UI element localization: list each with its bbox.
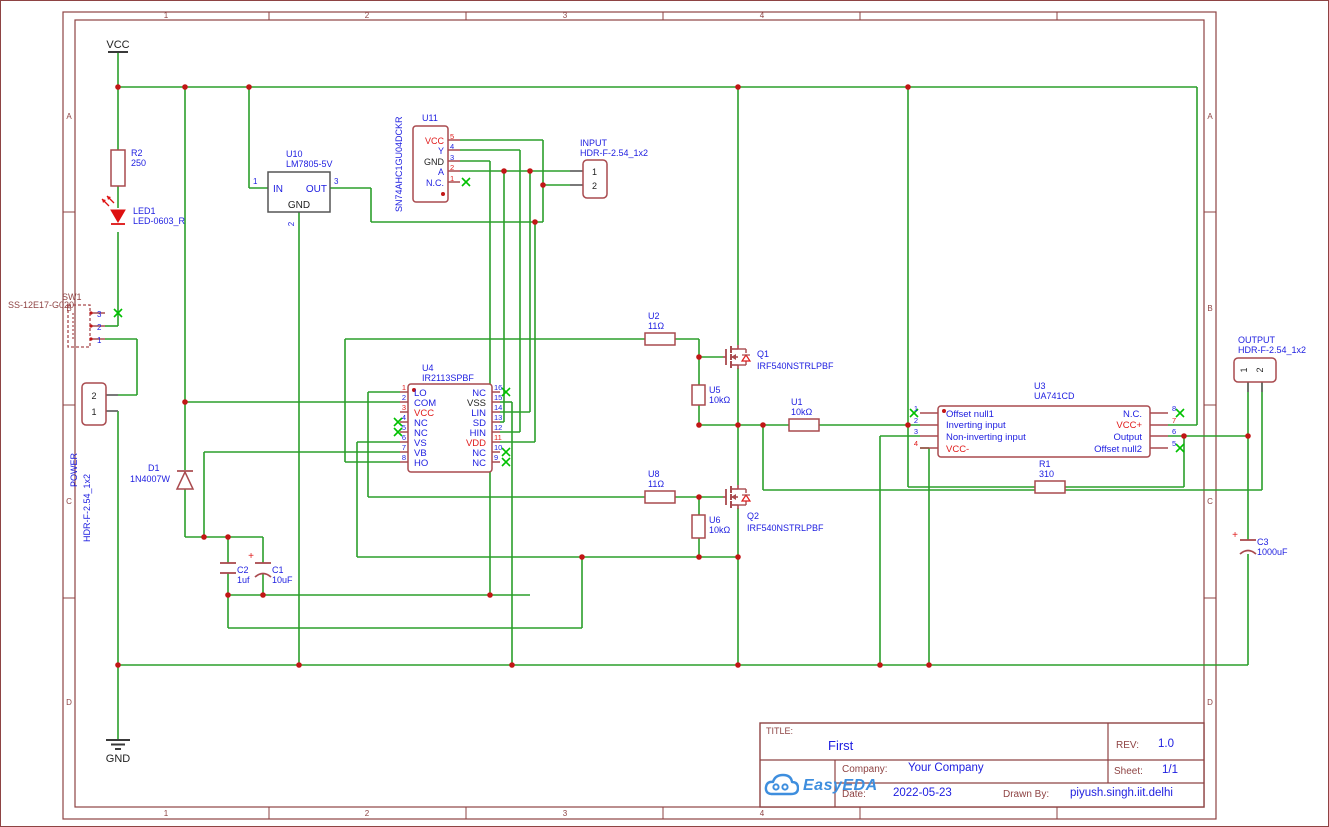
header-INPUT-body[interactable] (583, 160, 607, 198)
switch-pin-dot (89, 324, 92, 327)
label-D1-value: 1N4007W (130, 474, 171, 484)
pinnum-U4-11: 11 (494, 433, 502, 442)
label-U5-value: 10kΩ (709, 395, 731, 405)
resistor-U1-body[interactable] (789, 419, 819, 431)
label-R1-ref: R1 (1039, 459, 1051, 469)
frame-col-label: 4 (760, 11, 765, 20)
junction-dot (1245, 433, 1251, 439)
pin-U3-nc: N.C. (1123, 409, 1142, 420)
titleblock-company-value[interactable]: Your Company (908, 762, 984, 774)
frame-col-label: 2 (365, 809, 370, 818)
pinnum-U4-8: 8 (402, 453, 406, 462)
label-D1-ref: D1 (148, 463, 160, 473)
pin-U3-offset-null1: Offset null1 (946, 409, 994, 420)
label-U6-value: 10kΩ (709, 525, 731, 535)
resistor-U8-body[interactable] (645, 491, 675, 503)
titleblock-rev-label: REV: (1116, 740, 1139, 751)
label-R2-ref: R2 (131, 148, 143, 158)
pin-OUTPUT-1: 1 (1239, 367, 1249, 372)
junction-dot (696, 554, 702, 560)
pinnum-U3-7: 7 (1172, 416, 1176, 425)
pin-U11-Y: Y (438, 146, 444, 156)
diode-D1-anode[interactable] (177, 472, 193, 489)
pin-U10-OUT: OUT (306, 184, 327, 195)
junction-dot (115, 84, 121, 90)
pinnum-U3-5: 5 (1172, 439, 1176, 448)
switch-pin-dot (89, 311, 92, 314)
label-U3-value: UA741CD (1034, 391, 1075, 401)
capacitor-C1-plus: + (248, 551, 254, 562)
pin-U3-vcc-minus: VCC- (946, 444, 969, 455)
net-flag-vcc-label: VCC (106, 39, 129, 51)
pinnum-U11-1: 1 (450, 174, 454, 183)
pin-U3-inverting-input: Inverting input (946, 420, 1006, 431)
pin-U4-HO: HO (414, 458, 428, 469)
label-OUTPUT-ref: OUTPUT (1238, 335, 1276, 345)
label-R1-value: 310 (1039, 469, 1054, 479)
pinnum-U4-15: 15 (494, 393, 502, 402)
label-U4-ref: U4 (422, 363, 434, 373)
junction-dot (201, 534, 207, 540)
frame-row-label: B (1207, 304, 1212, 313)
label-U11-ref: U11 (422, 113, 438, 123)
pin-U4-NC9: NC (472, 458, 486, 469)
titleblock-drawnby-value[interactable]: piyush.singh.iit.delhi (1070, 787, 1173, 799)
label-C2-value: 1uf (237, 575, 250, 585)
junction-dot (905, 422, 911, 428)
junction-dot (532, 219, 538, 225)
label-U8-ref: U8 (648, 469, 660, 479)
mosfet-Q1-bodydiode-arrow (742, 355, 750, 361)
frame-col-label: 3 (563, 11, 568, 20)
junction-dot (509, 662, 515, 668)
pinnum-U11-2: 2 (450, 163, 454, 172)
resistor-R1-body[interactable] (1035, 481, 1065, 493)
junction-dot (260, 592, 266, 598)
label-C3-value: 1000uF (1257, 547, 1288, 557)
pin-OUTPUT-2: 2 (1255, 367, 1265, 372)
net-flag-gnd-label: GND (106, 753, 131, 765)
label-U3-ref: U3 (1034, 381, 1046, 391)
pinnum-U4-6: 6 (402, 433, 406, 442)
pinnum-U4-5: 5 (402, 423, 406, 432)
pinnum-U11-5: 5 (450, 132, 454, 141)
label-U10-value: LM7805-5V (286, 159, 333, 169)
junction-dot (540, 182, 546, 188)
pinnum-U4-10: 10 (494, 443, 502, 452)
pinnum-U4-2: 2 (402, 393, 406, 402)
titleblock-drawnby-label: Drawn By: (1003, 789, 1049, 800)
pinnum-U3-4: 4 (914, 439, 918, 448)
pinnum-U4-9: 9 (494, 453, 498, 462)
frame-row-label: C (66, 497, 72, 506)
label-U2-ref: U2 (648, 311, 660, 321)
frame-row-label: A (1207, 112, 1213, 121)
label-POWER-value: HDR-F-2.54_1x2 (82, 474, 92, 542)
label-INPUT-ref: INPUT (580, 138, 608, 148)
schematic-canvas[interactable]: 11223344AABBCCDD++VCCGNDR2250LED1LED-060… (0, 0, 1329, 827)
pinnum-U3-6: 6 (1172, 427, 1176, 436)
pinnum-U3-1: 1 (914, 404, 918, 413)
pinnum-U10-2: 2 (287, 221, 296, 226)
header-POWER-body[interactable] (82, 383, 106, 425)
pin-U3-non-inverting-input: Non-inverting input (946, 432, 1026, 443)
pinnum-U3-3: 3 (914, 427, 918, 436)
junction-dot (877, 662, 883, 668)
label-U4-value: IR2113SPBF (422, 373, 474, 383)
pin-SW1-1: 1 (97, 336, 102, 345)
junction-dot (115, 662, 121, 668)
capacitor-C3-plate[interactable] (1240, 551, 1256, 555)
pin-U10-IN: IN (273, 184, 283, 195)
titleblock-sheet-value[interactable]: 1/1 (1162, 764, 1178, 776)
capacitor-C3-plus: + (1232, 530, 1238, 541)
pin-POWER-2: 2 (91, 391, 96, 401)
junction-dot (696, 354, 702, 360)
label-U1-ref: U1 (791, 397, 803, 407)
pinnum-U4-14: 14 (494, 403, 502, 412)
easyeda-logo-text: EasyEDA (803, 777, 878, 795)
pin-U11-VCC: VCC (425, 136, 445, 146)
junction-dot (579, 554, 585, 560)
label-LED1-ref: LED1 (133, 206, 156, 216)
label-C1-value: 10uF (272, 575, 293, 585)
junction-dot (246, 84, 252, 90)
label-OUTPUT-value: HDR-F-2.54_1x2 (1238, 345, 1306, 355)
label-C3-ref: C3 (1257, 537, 1269, 547)
pin-INPUT-2: 2 (592, 181, 597, 191)
label-U8-value: 11Ω (648, 479, 664, 489)
pin-U3-output: Output (1113, 432, 1142, 443)
pin-SW1-2: 2 (97, 323, 102, 332)
label-U10-ref: U10 (286, 149, 303, 159)
pinnum-U4-3: 3 (402, 403, 406, 412)
titleblock-title-value[interactable]: First (828, 738, 853, 753)
junction-dot (225, 534, 231, 540)
junction-dot (905, 84, 911, 90)
pin-U11-A: A (438, 167, 444, 177)
label-Q1-value: IRF540NSTRLPBF (757, 361, 834, 371)
pinnum-U4-1: 1 (402, 383, 406, 392)
junction-dot (760, 422, 766, 428)
mosfet-Q2-bodydiode-arrow (742, 495, 750, 501)
label-LED1-value: LED-0603_R (133, 216, 186, 226)
pinnum-U10-1: 1 (253, 177, 258, 186)
easyeda-logo: EasyEDA (763, 772, 878, 800)
junction-dot (182, 84, 188, 90)
pin-INPUT-1: 1 (592, 167, 597, 177)
label-U2-value: 11Ω (648, 321, 664, 331)
resistor-U2-body[interactable] (645, 333, 675, 345)
pin-U3-vcc-plus: VCC+ (1116, 420, 1142, 431)
titleblock-date-value[interactable]: 2022-05-23 (893, 787, 952, 799)
label-C2-ref: C2 (237, 565, 249, 575)
pinnum-U11-3: 3 (450, 153, 454, 162)
pin-U10-GND: GND (288, 200, 310, 211)
frame-row-label: A (66, 112, 72, 121)
pinnum-U10-3: 3 (334, 177, 339, 186)
label-U6-ref: U6 (709, 515, 721, 525)
pinnum-U4-4: 4 (402, 413, 406, 422)
label-SW1-value: SS-12E17-G020 (8, 300, 74, 310)
frame-col-label: 1 (164, 809, 169, 818)
junction-dot (735, 422, 741, 428)
pinnum-U3-2: 2 (914, 416, 918, 425)
label-C1-ref: C1 (272, 565, 284, 575)
pinnum-U4-7: 7 (402, 443, 406, 452)
label-U11-value: SN74AHC1GU04DCKR (394, 116, 404, 212)
resistor-U5-body[interactable] (692, 385, 705, 405)
pin1-dot (441, 192, 445, 196)
pin-U11-NC: N.C. (426, 178, 444, 188)
label-POWER-ref: POWER (69, 453, 79, 488)
label-U1-value: 10kΩ (791, 407, 813, 417)
led-LED1-body[interactable] (111, 210, 125, 222)
junction-dot (296, 662, 302, 668)
label-U5-ref: U5 (709, 385, 721, 395)
pin-SW1-3: 3 (97, 310, 102, 319)
junction-dot (696, 422, 702, 428)
frame-col-label: 2 (365, 11, 370, 20)
junction-dot (501, 168, 507, 174)
pinnum-U4-16: 16 (494, 383, 502, 392)
pin-POWER-1: 1 (91, 407, 96, 417)
label-Q2-ref: Q2 (747, 511, 759, 521)
junction-dot (225, 592, 231, 598)
pinnum-U4-12: 12 (494, 423, 502, 432)
junction-dot (696, 494, 702, 500)
frame-col-label: 3 (563, 809, 568, 818)
frame-col-label: 1 (164, 11, 169, 20)
frame-row-label: C (1207, 497, 1213, 506)
titleblock-sheet-label: Sheet: (1114, 766, 1143, 777)
pinnum-U4-13: 13 (494, 413, 502, 422)
schematic-svg: 11223344AABBCCDD++VCCGNDR2250LED1LED-060… (0, 0, 1329, 827)
pinnum-U11-4: 4 (450, 142, 454, 151)
junction-dot (182, 399, 188, 405)
junction-dot (735, 554, 741, 560)
pinnum-U3-8: 8 (1172, 404, 1176, 413)
frame-col-label: 4 (760, 809, 765, 818)
resistor-R2-body[interactable] (111, 150, 125, 186)
label-Q2-value: IRF540NSTRLPBF (747, 523, 824, 533)
junction-dot (926, 662, 932, 668)
junction-dot (527, 168, 533, 174)
label-R2-value: 250 (131, 158, 146, 168)
junction-dot (735, 84, 741, 90)
label-Q1-ref: Q1 (757, 349, 769, 359)
pin-U11-GND: GND (424, 157, 445, 167)
pin-U3-offset-null2: Offset null2 (1094, 444, 1142, 455)
junction-dot (1181, 433, 1187, 439)
frame-row-label: D (66, 698, 72, 707)
label-INPUT-value: HDR-F-2.54_1x2 (580, 148, 648, 158)
frame-row-label: D (1207, 698, 1213, 707)
junction-dot (735, 662, 741, 668)
titleblock-title-label: TITLE: (766, 726, 793, 736)
junction-dot (487, 592, 493, 598)
switch-pin-dot (89, 337, 92, 340)
resistor-U6-body[interactable] (692, 515, 705, 538)
easyeda-cloud-icon (763, 772, 799, 800)
titleblock-rev-value[interactable]: 1.0 (1158, 738, 1174, 750)
